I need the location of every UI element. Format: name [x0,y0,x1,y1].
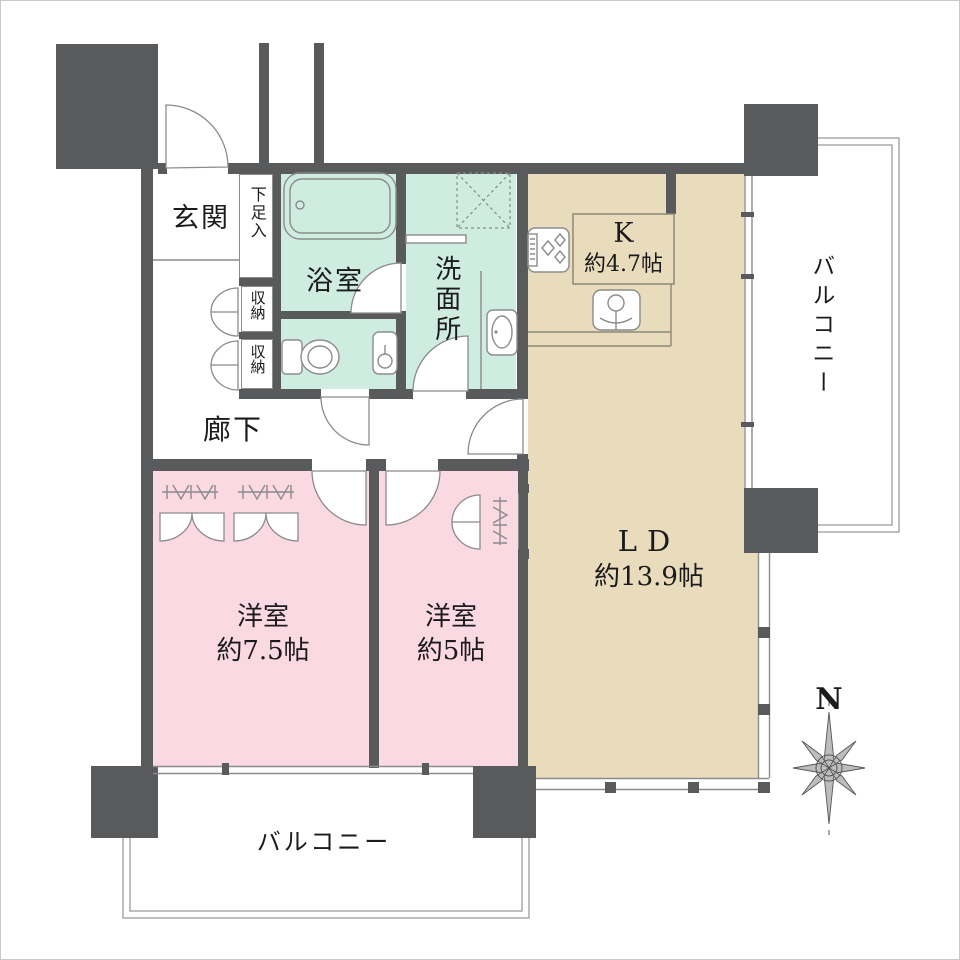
room-label-genkan: 玄関 [155,201,247,236]
ld-size: 約13.9帖 [566,561,732,595]
room-label-hall: 廊下 [193,412,273,448]
room-label-storage2: 収納 [247,344,267,374]
room-label-bath: 浴室 [285,264,385,299]
room-label-storage1: 収納 [247,290,267,320]
room-label-shoe: 下足入 [246,186,267,240]
room-label-washroom: 洗面所 [428,255,462,345]
bedroom1-size: 約7.5帖 [183,635,343,669]
label-balcony-bottom: バルコニー [239,827,409,858]
labels: 玄関 下足入 浴室 洗面所 収納 収納 廊下 K 約4.7帖 LD 約13.9帖… [1,1,960,960]
room-label-ld: LD 約13.9帖 [566,523,732,594]
room-label-bedroom2: 洋室 約5帖 [371,601,531,669]
room-label-kitchen: K 約4.7帖 [573,216,674,280]
kitchen-name: K [573,216,674,251]
bedroom2-name: 洋室 [371,601,531,635]
floor-plan: 玄関 下足入 浴室 洗面所 収納 収納 廊下 K 約4.7帖 LD 約13.9帖… [0,0,960,960]
bedroom2-size: 約5帖 [371,635,531,669]
label-balcony-right: バルコニー [805,254,835,399]
bedroom1-name: 洋室 [183,601,343,635]
ld-name: LD [566,523,732,561]
room-label-bedroom1: 洋室 約7.5帖 [183,601,343,669]
kitchen-size: 約4.7帖 [573,251,674,280]
compass-north-label: N [807,680,851,719]
